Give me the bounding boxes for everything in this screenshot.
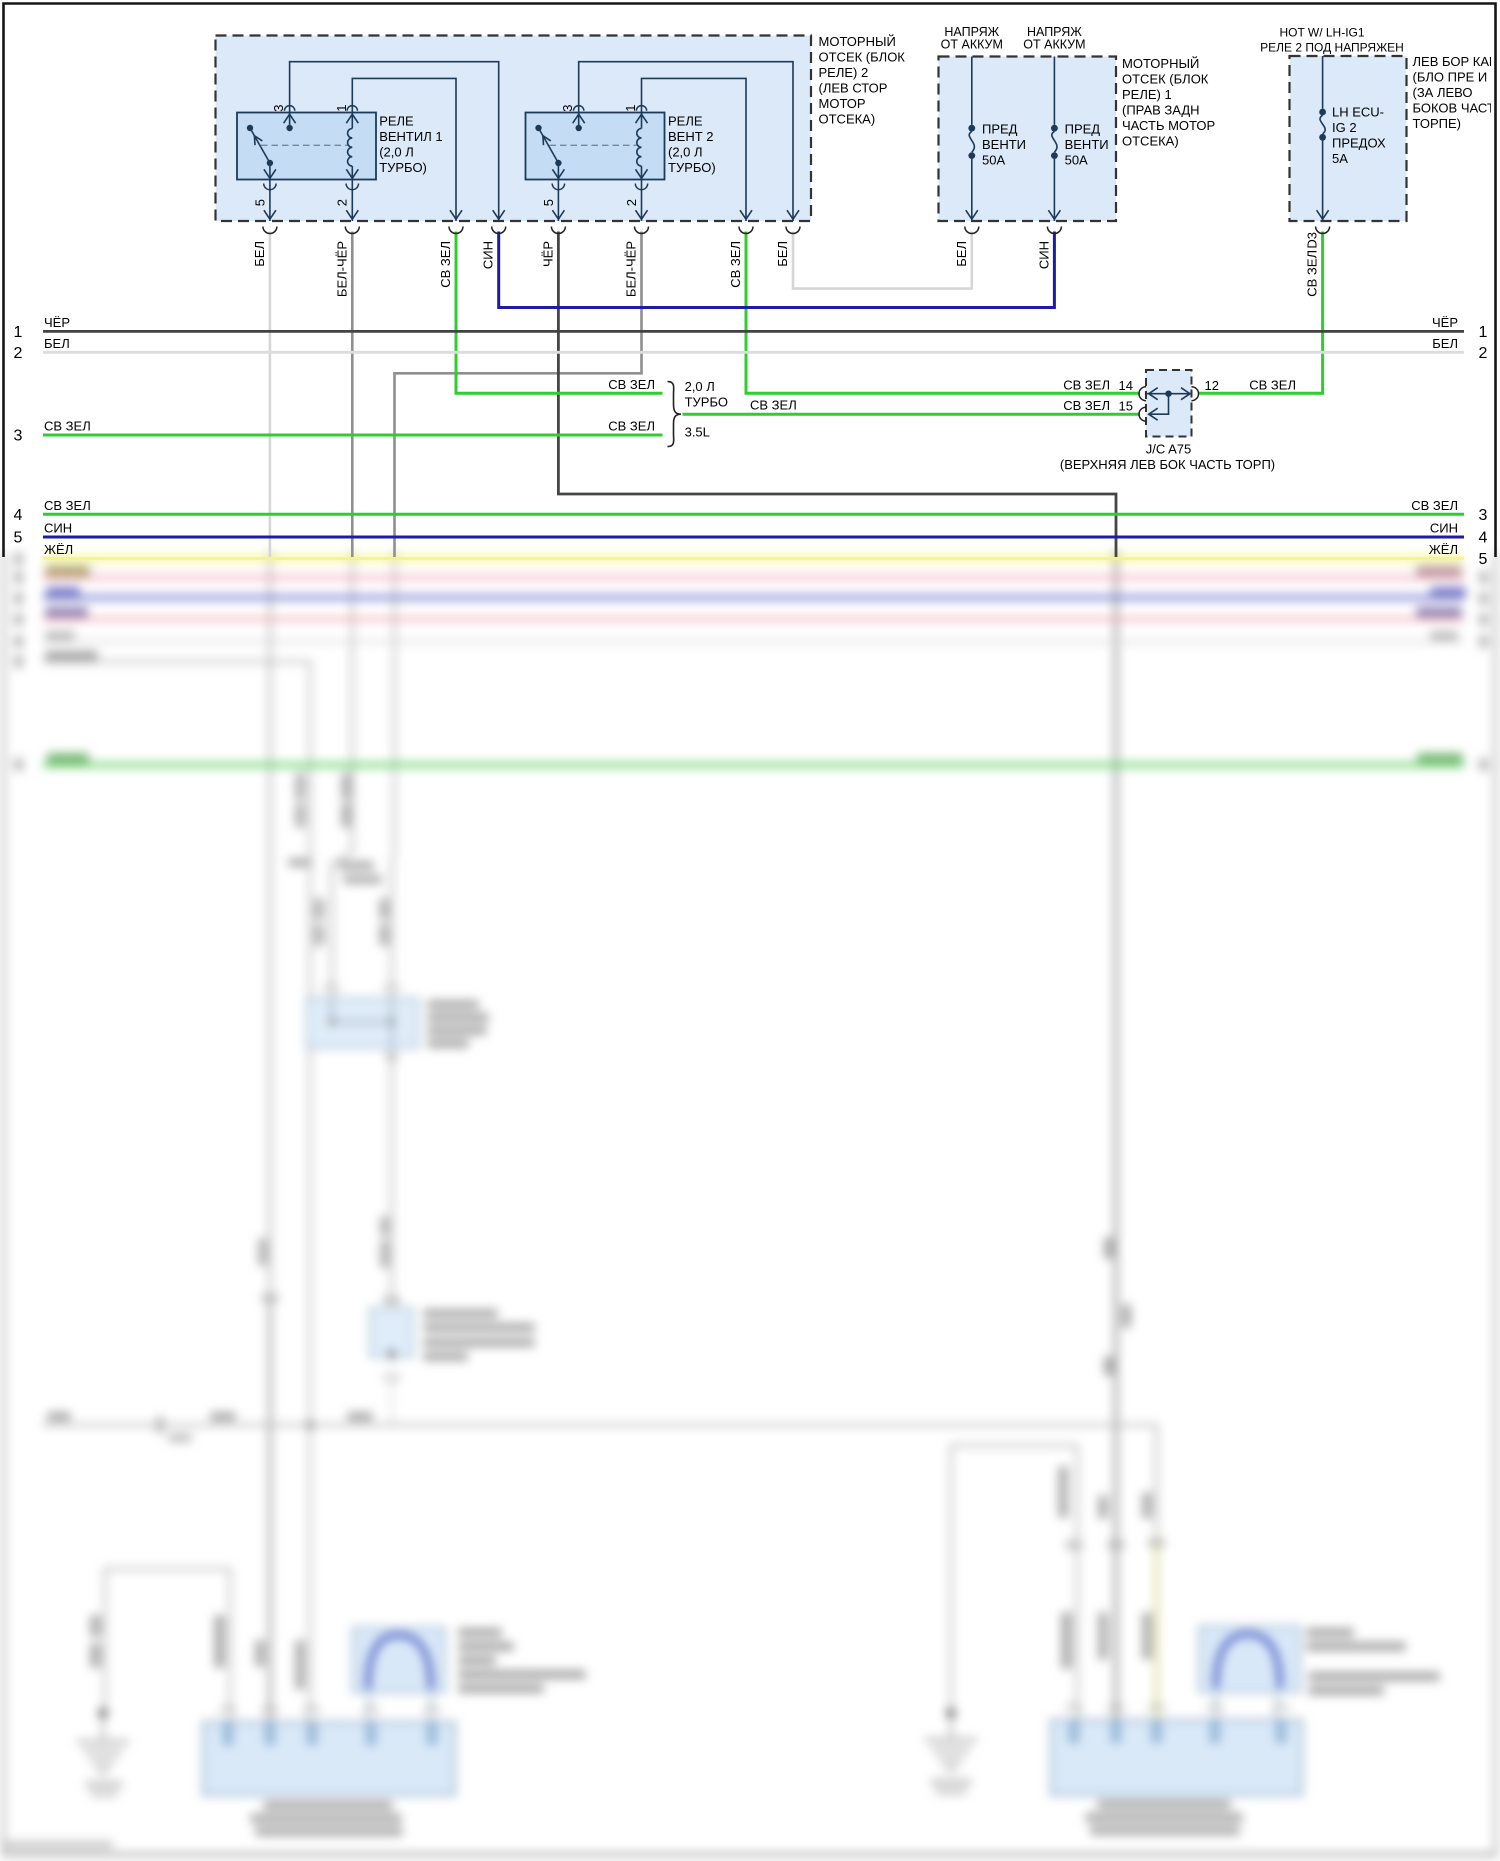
svg-text:ПРЕД: ПРЕД	[1065, 122, 1101, 137]
svg-text:4: 4	[14, 507, 23, 524]
svg-text:ТУРБО: ТУРБО	[685, 395, 728, 410]
svg-text:15: 15	[1119, 399, 1133, 414]
svg-text:3: 3	[1479, 507, 1488, 524]
svg-text:НАПРЯЖ: НАПРЯЖ	[1027, 25, 1082, 39]
svg-text:ЖЁЛ: ЖЁЛ	[1429, 542, 1458, 557]
svg-text:ОТ АККУМ: ОТ АККУМ	[1023, 38, 1085, 52]
svg-text:50А: 50А	[1065, 153, 1088, 168]
svg-text:СВ ЗЕЛ: СВ ЗЕЛ	[1249, 377, 1296, 392]
svg-text:СВ ЗЕЛ: СВ ЗЕЛ	[728, 241, 743, 288]
svg-text:СВ ЗЕЛ: СВ ЗЕЛ	[1411, 498, 1458, 513]
svg-text:1: 1	[334, 105, 349, 112]
svg-text:2: 2	[624, 199, 639, 206]
svg-text:1: 1	[1479, 324, 1488, 341]
svg-text:ПРЕДОХ: ПРЕДОХ	[1332, 136, 1386, 151]
svg-text:СИН: СИН	[44, 521, 72, 536]
svg-text:СВ ЗЕЛ: СВ ЗЕЛ	[1305, 250, 1320, 297]
svg-text:1: 1	[623, 105, 638, 112]
svg-text:(БЛО ПРЕ И РЕ: (БЛО ПРЕ И РЕ	[1413, 70, 1500, 85]
svg-text:БЕЛ: БЕЛ	[775, 241, 790, 267]
svg-text:БЕЛ: БЕЛ	[44, 336, 70, 351]
svg-text:СВ ЗЕЛ: СВ ЗЕЛ	[608, 419, 655, 434]
svg-text:СИН: СИН	[481, 241, 496, 269]
svg-text:3.5L: 3.5L	[685, 424, 710, 439]
svg-text:СВ ЗЕЛ: СВ ЗЕЛ	[44, 498, 91, 513]
svg-text:ОТ АККУМ: ОТ АККУМ	[941, 38, 1003, 52]
svg-text:СИН: СИН	[1036, 241, 1051, 269]
svg-text:РЕЛЕ) 2: РЕЛЕ) 2	[819, 65, 869, 80]
svg-text:HOT W/ LH-IG1: HOT W/ LH-IG1	[1279, 25, 1364, 39]
svg-text:5: 5	[14, 530, 23, 547]
svg-text:МОТОРНЫЙ: МОТОРНЫЙ	[819, 34, 896, 49]
svg-text:3: 3	[271, 105, 286, 112]
svg-text:РЕЛЕ: РЕЛЕ	[668, 113, 703, 128]
svg-text:(ЛЕВ СТОР: (ЛЕВ СТОР	[819, 81, 888, 96]
svg-text:ЧЁР: ЧЁР	[1432, 315, 1458, 330]
svg-text:ПРЕД: ПРЕД	[982, 122, 1018, 137]
svg-text:2: 2	[335, 199, 350, 206]
svg-text:1: 1	[14, 324, 23, 341]
svg-text:ТОРПЕ): ТОРПЕ)	[1413, 116, 1461, 131]
svg-text:5: 5	[1479, 551, 1488, 568]
svg-text:12: 12	[1205, 378, 1219, 393]
svg-text:ВЕНТИ: ВЕНТИ	[982, 137, 1026, 152]
svg-text:2,0 Л: 2,0 Л	[685, 379, 715, 394]
svg-text:(ВЕРХНЯЯ ЛЕВ БОК ЧАСТЬ ТОРП): (ВЕРХНЯЯ ЛЕВ БОК ЧАСТЬ ТОРП)	[1060, 457, 1275, 472]
svg-text:2: 2	[1479, 345, 1488, 362]
svg-text:D3: D3	[1305, 232, 1320, 249]
svg-text:БЕЛ-ЧЁР: БЕЛ-ЧЁР	[334, 241, 349, 297]
svg-text:МОТОР: МОТОР	[819, 96, 866, 111]
svg-text:БЕЛ-ЧЁР: БЕЛ-ЧЁР	[624, 241, 639, 297]
svg-text:4: 4	[1479, 530, 1488, 547]
svg-text:IG 2: IG 2	[1332, 120, 1357, 135]
svg-text:5: 5	[252, 199, 267, 206]
svg-text:ОТСЕКА): ОТСЕКА)	[1122, 134, 1179, 149]
svg-text:СВ ЗЕЛ: СВ ЗЕЛ	[1063, 377, 1110, 392]
svg-text:ОТСЕК (БЛОК: ОТСЕК (БЛОК	[819, 50, 906, 65]
svg-text:ВЕНТИ: ВЕНТИ	[1065, 137, 1109, 152]
svg-text:(ЗА ЛЕВО: (ЗА ЛЕВО	[1413, 85, 1473, 100]
svg-text:50А: 50А	[982, 153, 1005, 168]
svg-text:5А: 5А	[1332, 151, 1348, 166]
svg-text:ЖЁЛ: ЖЁЛ	[44, 542, 73, 557]
svg-text:(2,0 Л: (2,0 Л	[668, 144, 703, 159]
svg-text:3: 3	[560, 105, 575, 112]
svg-text:БЕЛ: БЕЛ	[1432, 336, 1458, 351]
svg-text:(2,0 Л: (2,0 Л	[379, 144, 414, 159]
svg-text:ОТСЕК (БЛОК: ОТСЕК (БЛОК	[1122, 72, 1209, 87]
svg-text:ВЕНТИЛ 1: ВЕНТИЛ 1	[379, 129, 442, 144]
svg-text:ЛЕВ БОР КАП: ЛЕВ БОР КАП	[1413, 54, 1499, 69]
svg-text:ОТСЕКА): ОТСЕКА)	[819, 112, 876, 127]
svg-text:3: 3	[14, 428, 23, 445]
svg-text:СВ ЗЕЛ: СВ ЗЕЛ	[1063, 398, 1110, 413]
svg-text:СВ ЗЕЛ: СВ ЗЕЛ	[608, 377, 655, 392]
svg-text:ТУРБО): ТУРБО)	[668, 160, 716, 175]
svg-text:СВ ЗЕЛ: СВ ЗЕЛ	[44, 419, 91, 434]
svg-text:НАПРЯЖ: НАПРЯЖ	[944, 25, 999, 39]
svg-text:БОКОВ ЧАСТЬ: БОКОВ ЧАСТЬ	[1413, 101, 1500, 116]
svg-text:ТУРБО): ТУРБО)	[379, 160, 427, 175]
svg-text:LH ECU-: LH ECU-	[1332, 105, 1384, 120]
svg-text:БЕЛ: БЕЛ	[954, 241, 969, 267]
svg-text:14: 14	[1119, 378, 1133, 393]
svg-text:МОТОРНЫЙ: МОТОРНЫЙ	[1122, 56, 1199, 71]
svg-text:ЧЁР: ЧЁР	[44, 315, 70, 330]
svg-text:СВ ЗЕЛ: СВ ЗЕЛ	[750, 398, 797, 413]
svg-text:БЕЛ: БЕЛ	[252, 241, 267, 267]
svg-text:ВЕНТ 2: ВЕНТ 2	[668, 129, 714, 144]
svg-text:ЧЁР: ЧЁР	[540, 241, 555, 267]
svg-text:СВ ЗЕЛ: СВ ЗЕЛ	[438, 241, 453, 288]
svg-text:РЕЛЕ) 1: РЕЛЕ) 1	[1122, 87, 1172, 102]
svg-text:5: 5	[541, 199, 556, 206]
svg-text:J/C A75: J/C A75	[1146, 442, 1192, 457]
svg-text:РЕЛЕ 2 ПОД НАПРЯЖЕН: РЕЛЕ 2 ПОД НАПРЯЖЕН	[1260, 41, 1404, 55]
svg-text:2: 2	[14, 345, 23, 362]
svg-text:РЕЛЕ: РЕЛЕ	[379, 113, 414, 128]
svg-text:(ПРАВ ЗАДН: (ПРАВ ЗАДН	[1122, 103, 1200, 118]
svg-text:ЧАСТЬ МОТОР: ЧАСТЬ МОТОР	[1122, 118, 1215, 133]
svg-text:СИН: СИН	[1430, 521, 1458, 536]
